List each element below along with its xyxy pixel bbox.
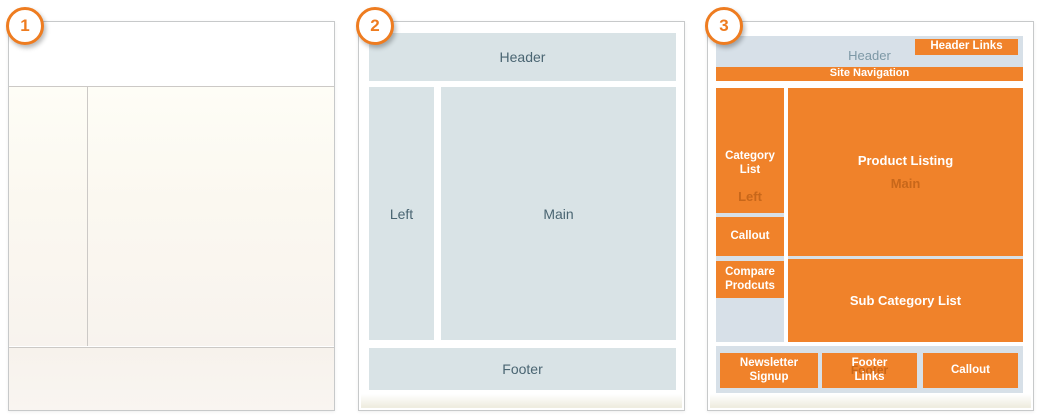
compare-products-block: Compare Prodcuts <box>716 261 784 298</box>
product-listing-block: Product Listing Main <box>788 88 1023 256</box>
blank-footer-region <box>9 347 334 410</box>
panel-step-3-annotated-layout: 3 Header Header Links Site Navigation Ca… <box>707 21 1034 411</box>
footer-links-block: Footer Footer Links <box>822 353 917 388</box>
compare-products-label: Compare Prodcuts <box>720 266 780 294</box>
blank-left-column-region <box>9 87 88 346</box>
blank-header-region <box>9 22 334 87</box>
newsletter-signup-label: Newsletter Signup <box>734 357 804 385</box>
header-links-block: Header Links <box>915 39 1018 55</box>
left-region-label: Left <box>390 206 413 222</box>
panel-step-1-blank-layout: 1 <box>8 21 335 411</box>
wireframe-evolution-diagram: 1 2 Header Left Main Footer 3 Header Hea… <box>0 0 1044 417</box>
sub-category-list-block: Sub Category List <box>788 259 1023 342</box>
ghost-left-label: Left <box>716 189 784 205</box>
callout-footer-block: Callout <box>923 353 1018 388</box>
panel-step-2-labeled-layout: 2 Header Left Main Footer <box>358 21 685 411</box>
footer-region: Footer <box>369 348 676 390</box>
header-region-label: Header <box>500 49 546 65</box>
step-3-badge: 3 <box>705 7 743 45</box>
header-region: Header <box>369 33 676 81</box>
main-region: Main <box>441 87 676 340</box>
step-2-badge: 2 <box>356 7 394 45</box>
newsletter-signup-block: Newsletter Signup <box>720 353 818 388</box>
product-listing-label: Product Listing <box>858 153 953 169</box>
blank-main-region <box>88 87 334 346</box>
site-navigation-block: Site Navigation <box>716 67 1023 81</box>
footer-region-label: Footer <box>502 361 542 377</box>
main-region-label: Main <box>543 206 573 222</box>
sub-category-list-label: Sub Category List <box>850 293 961 309</box>
callout-left-label: Callout <box>731 230 770 244</box>
footer-band-region: Newsletter Signup Footer Footer Links Ca… <box>716 346 1023 393</box>
callout-left-block: Callout <box>716 217 784 256</box>
category-list-block: Category List Left <box>716 88 784 213</box>
left-column-region: Left <box>369 87 434 340</box>
site-navigation-label: Site Navigation <box>830 67 909 80</box>
footer-links-label: Footer Links <box>846 357 894 385</box>
callout-footer-label: Callout <box>951 364 990 378</box>
ghost-main-label: Main <box>891 176 921 192</box>
category-list-label: Category List <box>720 150 780 178</box>
step-1-badge: 1 <box>6 7 44 45</box>
header-links-label: Header Links <box>930 40 1002 54</box>
